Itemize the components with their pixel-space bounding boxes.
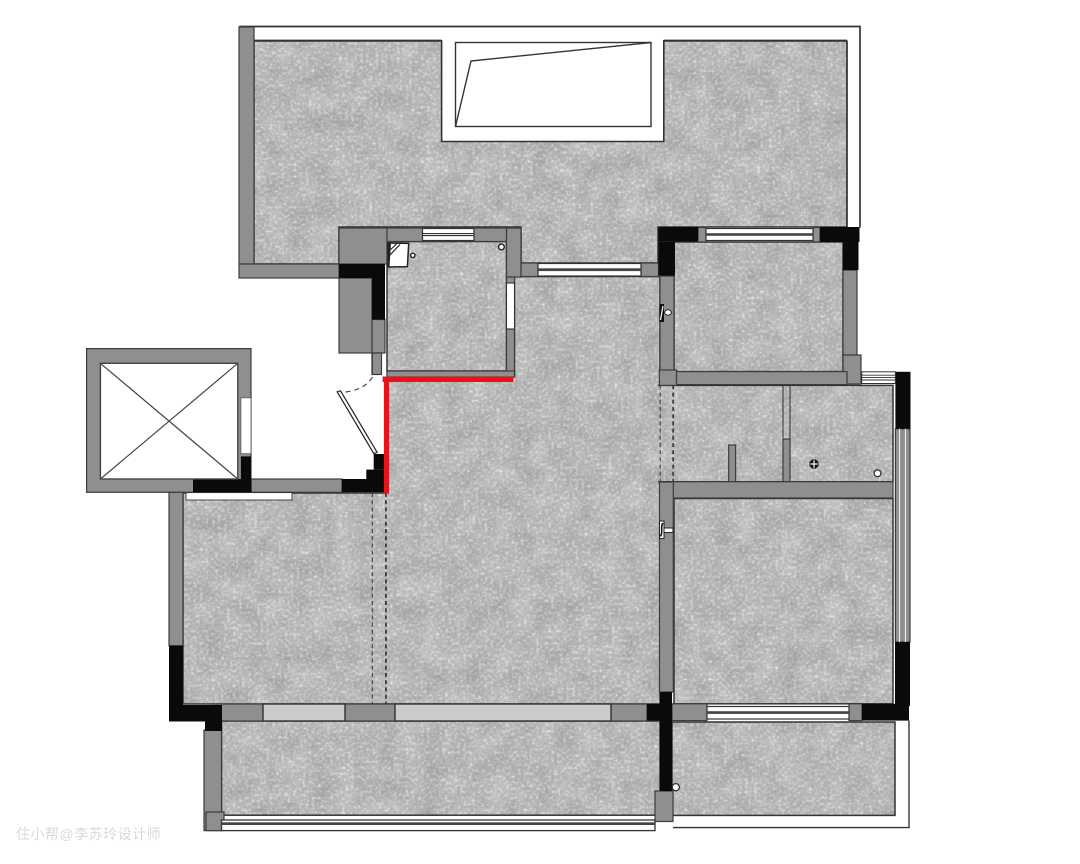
svg-text:住小帮@李苏玲设计师: 住小帮@李苏玲设计师 <box>16 826 161 842</box>
